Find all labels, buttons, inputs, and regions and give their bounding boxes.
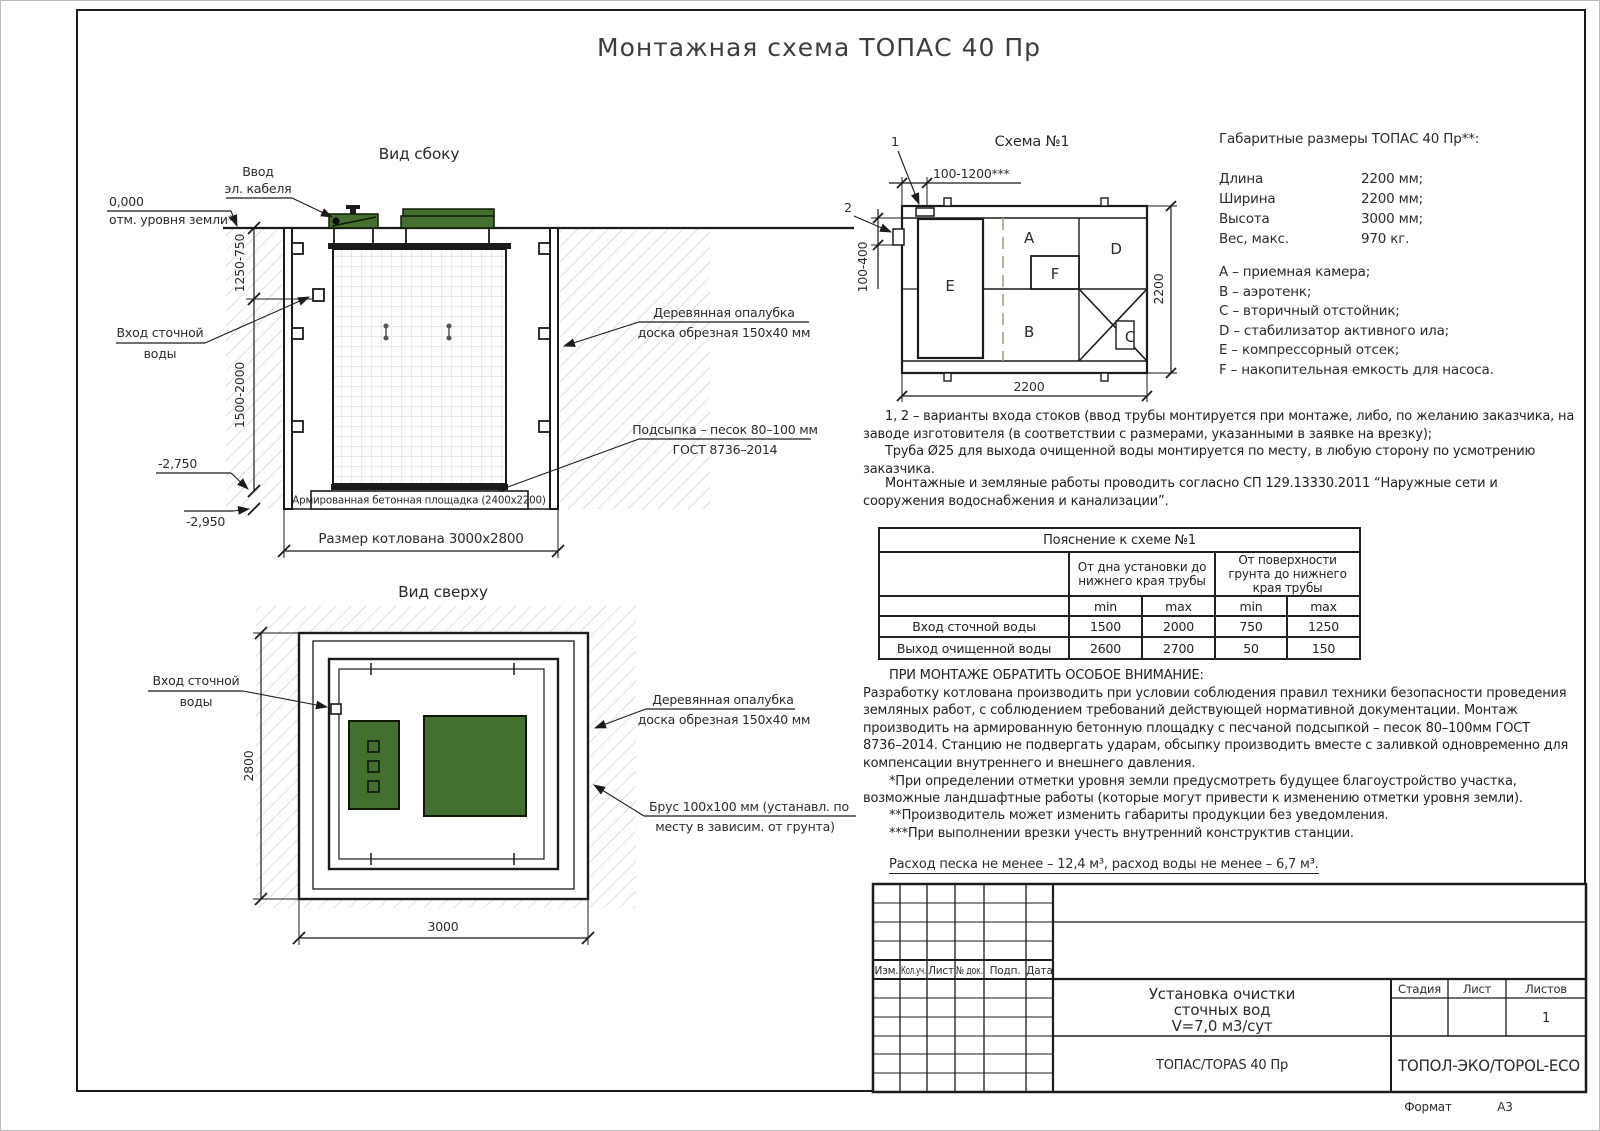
svg-text:Стадия: Стадия xyxy=(1398,982,1441,996)
spec-value: 3000 мм; xyxy=(1361,211,1423,227)
stamp-company: ТОПОЛ-ЭКО/TOPOL-ECO xyxy=(1397,1056,1580,1075)
specs-block: Габаритные размеры ТОПАС 40 Пр**: Длина2… xyxy=(1219,131,1579,381)
inlet-pipe-marker xyxy=(313,289,324,301)
attention-body: Разработку котлована производить при усл… xyxy=(863,685,1569,773)
svg-text:Изм.: Изм. xyxy=(875,965,899,977)
inlet-pipe-marker xyxy=(331,704,341,714)
cell-value: 2700 xyxy=(1142,637,1215,659)
svg-text:-2,950: -2,950 xyxy=(186,514,225,529)
cable-entry-label: Ввод эл. кабеля xyxy=(225,164,332,217)
concrete-pad: Армированная бетонная площадка (2400х220… xyxy=(292,491,546,509)
svg-text:воды: воды xyxy=(144,346,177,361)
schema-body xyxy=(893,198,1147,381)
svg-text:Дата: Дата xyxy=(1026,965,1052,977)
svg-text:0,000: 0,000 xyxy=(109,194,144,209)
svg-text:2: 2 xyxy=(844,200,852,215)
stamp-header-labels: Изм. Кол.уч. Лист № док. Подп. Дата xyxy=(875,965,1053,977)
page-title: Монтажная схема ТОПАС 40 Пр xyxy=(597,33,1041,62)
table-group-2: От поверхности грунта до нижнего края тр… xyxy=(1215,552,1360,596)
table-row: Выход очищенной воды 2600 2700 50 150 xyxy=(879,637,1360,659)
title-block: Изм. Кол.уч. Лист № док. Подп. Дата Уста… xyxy=(861,881,1600,1121)
spec-label: Ширина xyxy=(1219,191,1361,207)
marker-1: 1 xyxy=(891,134,919,204)
svg-text:2200: 2200 xyxy=(1013,379,1044,394)
cell-value: 2000 xyxy=(1142,616,1215,637)
svg-text:Кол.уч.: Кол.уч. xyxy=(901,965,926,977)
cell-value: 750 xyxy=(1215,616,1287,637)
svg-text:Вход сточной: Вход сточной xyxy=(153,673,240,688)
top-view-title: Вид сверху xyxy=(398,583,488,601)
cell-value: 1500 xyxy=(1069,616,1142,637)
spec-label: Длина xyxy=(1219,171,1361,187)
specs-title: Габаритные размеры ТОПАС 40 Пр**: xyxy=(1219,131,1579,147)
svg-text:D: D xyxy=(1110,240,1121,258)
legend-item: C – вторичный отстойник; xyxy=(1219,303,1579,323)
cell-value: 2600 xyxy=(1069,637,1142,659)
variants-note: 1, 2 – варианты входа стоков (ввод трубы… xyxy=(863,408,1575,478)
station-tank xyxy=(328,228,511,490)
sheets-count: 1 xyxy=(1542,1011,1550,1026)
drawing-page: Монтажная схема ТОПАС 40 Пр Вид сбоку xyxy=(0,0,1600,1131)
svg-text:№ док.: № док. xyxy=(956,965,983,977)
row-label: Выход очищенной воды xyxy=(879,637,1069,659)
svg-text:Вход сточной: Вход сточной xyxy=(117,325,204,340)
svg-text:Деревянная опалубка: Деревянная опалубка xyxy=(652,692,793,707)
empty-cell xyxy=(879,596,1069,616)
svg-text:Подсыпка – песок 80–100 мм: Подсыпка – песок 80–100 мм xyxy=(632,422,818,437)
svg-text:Формат: Формат xyxy=(1404,1100,1452,1114)
row-label: Вход сточной воды xyxy=(879,616,1069,637)
svg-text:100-400: 100-400 xyxy=(855,241,870,292)
svg-text:C: C xyxy=(1125,328,1135,346)
svg-text:А3: А3 xyxy=(1497,1100,1512,1114)
svg-text:B: B xyxy=(1024,323,1034,341)
pit-size-dimension: Размер котлована 3000х2800 xyxy=(278,509,564,558)
elevation-bottom-mark: -2,950 xyxy=(184,509,249,529)
svg-text:100-1200***: 100-1200*** xyxy=(933,166,1010,181)
svg-text:отм. уровня земли*: отм. уровня земли* xyxy=(109,212,234,227)
marker-2: 2 xyxy=(844,200,891,232)
schema-title: Схема №1 xyxy=(995,134,1070,150)
sp-paragraph: Монтажные и земляные работы проводить со… xyxy=(863,475,1513,510)
svg-text:Размер котлована 3000х2800: Размер котлована 3000х2800 xyxy=(318,531,523,547)
min-header: min xyxy=(1215,596,1287,616)
inlet-variant-1 xyxy=(916,208,934,216)
svg-text:F: F xyxy=(1051,265,1059,283)
legend-item: A – приемная камера; xyxy=(1219,264,1579,284)
dim-top: 100-1200*** xyxy=(889,166,1021,206)
svg-text:Подп.: Подп. xyxy=(990,965,1021,977)
svg-text:Деревянная опалубка: Деревянная опалубка xyxy=(653,305,794,320)
spec-value: 2200 мм; xyxy=(1361,171,1423,187)
svg-text:1: 1 xyxy=(891,134,899,149)
svg-text:Ввод: Ввод xyxy=(242,164,273,179)
table-title: Пояснение к схеме №1 xyxy=(879,528,1360,552)
svg-text:3000: 3000 xyxy=(427,919,458,934)
ground-level-mark: 0,000 отм. уровня земли* xyxy=(107,194,237,227)
svg-text:месту в зависим. от грунта): месту в зависим. от грунта) xyxy=(655,819,835,834)
spec-label: Вес, макс. xyxy=(1219,231,1361,247)
cell-value: 50 xyxy=(1215,637,1287,659)
room-legend: A – приемная камера; B – аэротенк; C – в… xyxy=(1219,264,1579,381)
consumption-note: Расход песка не менее – 12,4 м³, расход … xyxy=(889,853,1319,872)
specs-rows: Длина2200 мм; Ширина2200 мм; Высота3000 … xyxy=(1219,169,1579,249)
table-corner-cell xyxy=(879,552,1069,596)
min-header: min xyxy=(1069,596,1142,616)
legend-item: F – накопительная емкость для насоса. xyxy=(1219,362,1579,382)
svg-text:Лист: Лист xyxy=(928,965,954,977)
inlet-variant-2 xyxy=(893,229,904,245)
svg-text:A: A xyxy=(1024,229,1035,247)
variants-paragraph-1: 1, 2 – варианты входа стоков (ввод трубы… xyxy=(863,408,1575,443)
svg-text:V=7,0 м3/сут: V=7,0 м3/сут xyxy=(1172,1017,1273,1035)
footnotes: *При определении отметки уровня земли пр… xyxy=(863,773,1569,842)
svg-text:доска обрезная 150х40 мм: доска обрезная 150х40 мм xyxy=(638,325,811,340)
stamp-product: ТОПАС/TOPAS 40 Пр xyxy=(1155,1058,1288,1073)
variants-paragraph-2: Труба Ø25 для выхода очищенной воды монт… xyxy=(863,443,1575,478)
dim-upper-label: 1250-750 xyxy=(232,233,247,292)
side-view-title: Вид сбоку xyxy=(379,145,460,163)
svg-text:доска обрезная 150х40 мм: доска обрезная 150х40 мм xyxy=(638,712,811,727)
tank-covers xyxy=(329,205,494,228)
table-group-1: От дна установки до нижнего края трубы xyxy=(1069,552,1215,596)
footnote-3: ***При выполнении врезки учесть внутренн… xyxy=(863,825,1569,842)
table-row: Вход сточной воды 1500 2000 750 1250 xyxy=(879,616,1360,637)
sp-note: Монтажные и земляные работы проводить со… xyxy=(863,475,1513,510)
attention-title: ПРИ МОНТАЖЕ ОБРАТИТЬ ОСОБОЕ ВНИМАНИЕ: xyxy=(863,667,1569,685)
max-header: max xyxy=(1287,596,1360,616)
footnote-2: **Производитель может изменить габариты … xyxy=(863,807,1569,824)
legend-item: E – компрессорный отсек; xyxy=(1219,342,1579,362)
dim-lower-label: 1500-2000 xyxy=(232,362,247,429)
format-note: Формат А3 xyxy=(1404,1100,1512,1114)
legend-item: B – аэротенк; xyxy=(1219,284,1579,304)
svg-text:-2,750: -2,750 xyxy=(158,456,197,471)
top-view-drawing: Вид сверху 2800 xyxy=(81,561,871,961)
schema-drawing: Схема №1 A D E F B C xyxy=(821,119,1206,414)
svg-text:E: E xyxy=(945,277,954,295)
svg-text:2800: 2800 xyxy=(241,750,256,781)
concrete-pad-label: Армированная бетонная площадка (2400х220… xyxy=(292,495,546,507)
footnote-1: *При определении отметки уровня земли пр… xyxy=(863,773,1569,807)
tank-covers-top xyxy=(349,716,526,816)
svg-text:эл. кабеля: эл. кабеля xyxy=(225,181,292,196)
side-view-drawing: Вид сбоку xyxy=(81,126,871,578)
svg-text:Брус 100х100 мм (устанавл. по: Брус 100х100 мм (устанавл. по xyxy=(649,799,849,814)
spec-value: 2200 мм; xyxy=(1361,191,1423,207)
consumption-text: Расход песка не менее – 12,4 м³, расход … xyxy=(889,857,1319,874)
explanation-table: Пояснение к схеме №1 От дна установки до… xyxy=(878,527,1361,660)
dim-bottom: 2200 xyxy=(897,373,1152,402)
max-header: max xyxy=(1142,596,1215,616)
svg-text:Листов: Листов xyxy=(1525,982,1567,996)
cable-entry-point xyxy=(332,217,339,224)
attention-note: ПРИ МОНТАЖЕ ОБРАТИТЬ ОСОБОЕ ВНИМАНИЕ: Ра… xyxy=(863,667,1569,772)
cell-value: 1250 xyxy=(1287,616,1360,637)
cell-value: 150 xyxy=(1287,637,1360,659)
svg-text:2200: 2200 xyxy=(1151,273,1166,304)
svg-text:воды: воды xyxy=(180,694,213,709)
dim-left: 100-400 xyxy=(855,209,902,292)
legend-item: D – стабилизатор активного ила; xyxy=(1219,323,1579,343)
spec-label: Высота xyxy=(1219,211,1361,227)
spec-value: 970 кг. xyxy=(1361,231,1409,247)
dim-right: 2200 xyxy=(1147,201,1177,378)
svg-text:ГОСТ 8736–2014: ГОСТ 8736–2014 xyxy=(673,442,778,457)
svg-text:Лист: Лист xyxy=(1463,982,1492,996)
